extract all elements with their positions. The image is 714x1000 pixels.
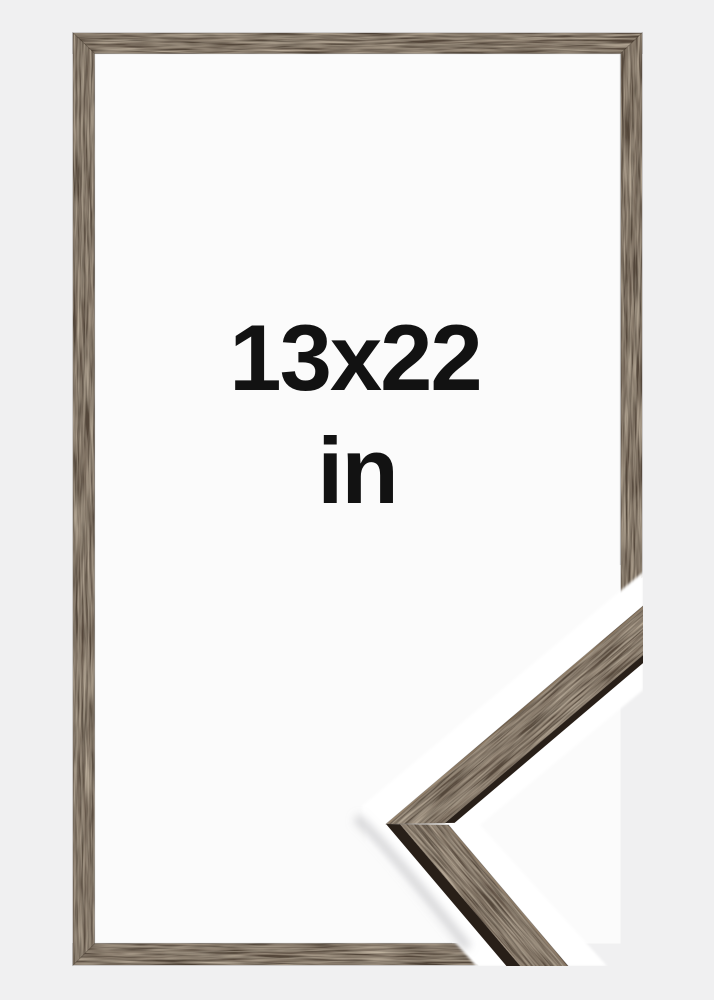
frame-right-bar — [621, 33, 642, 594]
frame-product-canvas: 13x22 in — [0, 0, 714, 1000]
size-label: 13x22 — [229, 305, 480, 410]
unit-label: in — [317, 418, 397, 523]
frame-top-bar — [73, 33, 642, 54]
frame-bottom-bar — [73, 944, 478, 966]
frame-left-bar — [73, 33, 95, 965]
frame-product-image: 13x22 in — [0, 0, 714, 1000]
